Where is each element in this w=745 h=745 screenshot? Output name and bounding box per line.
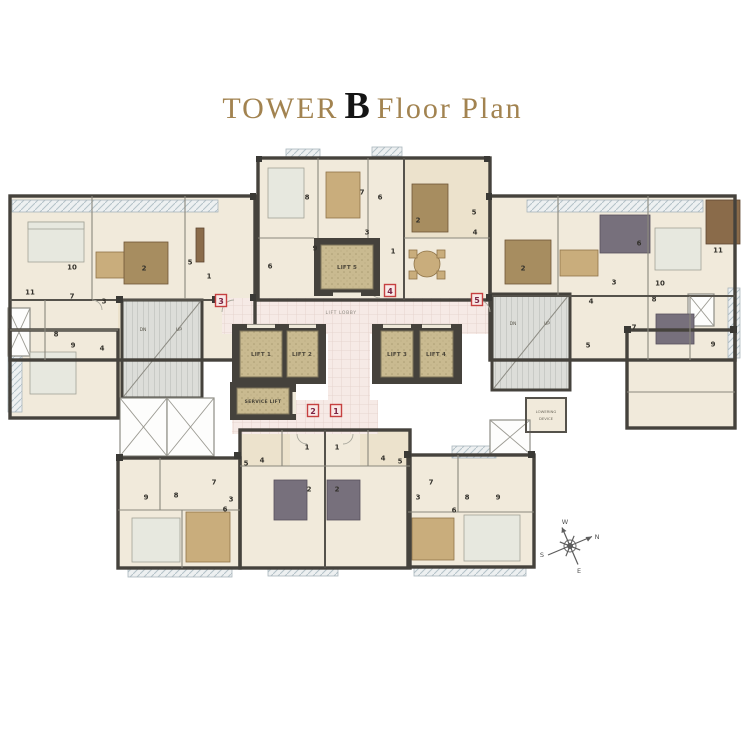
room-number-west-wing-6: 6 bbox=[268, 263, 273, 271]
lift-lobby-label: LIFT LOBBY bbox=[325, 310, 356, 316]
room-number-north-center-4: 4 bbox=[473, 229, 478, 237]
room-number-north-center-5: 5 bbox=[472, 209, 477, 217]
floor-plan-drawing: DN UP DN UP bbox=[0, 0, 745, 745]
lift1-label: LIFT 1 bbox=[251, 352, 271, 358]
west-stair-up-label: UP bbox=[176, 327, 182, 333]
compass-rose: W N S E bbox=[540, 518, 600, 575]
room-number-east-wing-4: 4 bbox=[589, 298, 594, 306]
west-stair-down-label: DN bbox=[140, 327, 147, 333]
room-number-south-west-5: 5 bbox=[244, 460, 249, 468]
floor-plan-page: TOWERBFloor Plan bbox=[0, 0, 745, 745]
room-number-north-center-3: 3 bbox=[365, 229, 370, 237]
position-marker-2: 2 bbox=[308, 405, 319, 417]
room-number-west-wing-2: 2 bbox=[142, 265, 147, 273]
east-staircase: DN UP bbox=[492, 294, 570, 390]
room-number-east-wing-11: 11 bbox=[713, 247, 723, 255]
room-number-east-wing-8: 8 bbox=[652, 296, 657, 304]
room-number-west-wing-4: 4 bbox=[100, 345, 105, 353]
room-number-south-east-8: 8 bbox=[465, 494, 470, 502]
room-number-south-east-4: 4 bbox=[381, 455, 386, 463]
room-number-east-wing-10: 10 bbox=[655, 280, 665, 288]
room-number-east-wing-2: 2 bbox=[521, 265, 526, 273]
room-number-west-wing-1: 1 bbox=[207, 273, 212, 281]
west-staircase: DN UP bbox=[122, 300, 202, 398]
room-number-west-wing-7: 7 bbox=[70, 293, 75, 301]
room-number-south-west-6: 6 bbox=[223, 506, 228, 514]
compass-east-label: E bbox=[577, 567, 581, 575]
room-number-east-wing-6: 6 bbox=[637, 240, 642, 248]
room-number-east-wing-7: 7 bbox=[632, 324, 637, 332]
room-number-west-wing-3: 3 bbox=[102, 298, 107, 306]
room-number-west-wing-10: 10 bbox=[67, 264, 77, 272]
east-stair-up-label: UP bbox=[544, 321, 550, 327]
room-number-west-wing-9: 9 bbox=[71, 342, 76, 350]
room-number-north-center-9: 9 bbox=[313, 245, 318, 253]
room-number-south-east-5: 5 bbox=[398, 458, 403, 466]
position-marker-1: 1 bbox=[331, 405, 342, 417]
compass-south-label: S bbox=[540, 551, 544, 559]
room-number-south-west-9: 9 bbox=[144, 494, 149, 502]
position-marker-3: 3 bbox=[216, 295, 227, 307]
room-number-south-west-3: 3 bbox=[229, 496, 234, 504]
compass-north-label: N bbox=[595, 533, 600, 541]
room-number-north-center-2: 2 bbox=[416, 217, 421, 225]
svg-text:2: 2 bbox=[310, 407, 316, 416]
room-number-south-east-7: 7 bbox=[429, 479, 434, 487]
position-marker-5: 5 bbox=[472, 294, 483, 306]
east-stair-down-label: DN bbox=[510, 321, 517, 327]
svg-text:4: 4 bbox=[387, 287, 393, 296]
room-number-south-west-8: 8 bbox=[174, 492, 179, 500]
room-number-west-wing-8: 8 bbox=[54, 331, 59, 339]
room-number-north-center-6: 6 bbox=[378, 194, 383, 202]
room-number-west-wing-11: 11 bbox=[25, 289, 35, 297]
lowering-device-label-line2: DEVICE bbox=[539, 416, 554, 421]
room-number-east-wing-3: 3 bbox=[612, 279, 617, 287]
room-number-south-center-east-2: 2 bbox=[335, 486, 340, 494]
room-number-north-center-8: 8 bbox=[305, 194, 310, 202]
svg-text:5: 5 bbox=[474, 296, 480, 305]
room-number-east-wing-5: 5 bbox=[586, 342, 591, 350]
room-number-south-east-9: 9 bbox=[496, 494, 501, 502]
service-lift-label: SERVICE LIFT bbox=[245, 399, 282, 405]
room-number-north-center-1: 1 bbox=[391, 248, 396, 256]
svg-text:1: 1 bbox=[333, 407, 339, 416]
svg-text:3: 3 bbox=[218, 297, 224, 306]
compass-west-label: W bbox=[562, 518, 569, 526]
position-marker-4: 4 bbox=[385, 285, 396, 297]
room-number-west-wing-5: 5 bbox=[188, 259, 193, 267]
room-number-south-west-4: 4 bbox=[260, 457, 265, 465]
room-number-east-wing-9: 9 bbox=[711, 341, 716, 349]
room-number-south-center-west-2: 2 bbox=[307, 486, 312, 494]
room-number-south-west-7: 7 bbox=[212, 479, 217, 487]
room-number-south-center-west-1: 1 bbox=[305, 444, 310, 452]
lift2-label: LIFT 2 bbox=[292, 352, 312, 358]
lowering-device-label-line1: LOWERING bbox=[536, 409, 557, 414]
room-number-south-east-6: 6 bbox=[452, 507, 457, 515]
room-number-south-center-east-1: 1 bbox=[335, 444, 340, 452]
lift5-label: LIFT 5 bbox=[337, 265, 357, 271]
room-number-south-east-3: 3 bbox=[416, 494, 421, 502]
lift3-label: LIFT 3 bbox=[387, 352, 407, 358]
room-number-north-center-7: 7 bbox=[360, 189, 365, 197]
lift4-label: LIFT 4 bbox=[426, 352, 446, 358]
